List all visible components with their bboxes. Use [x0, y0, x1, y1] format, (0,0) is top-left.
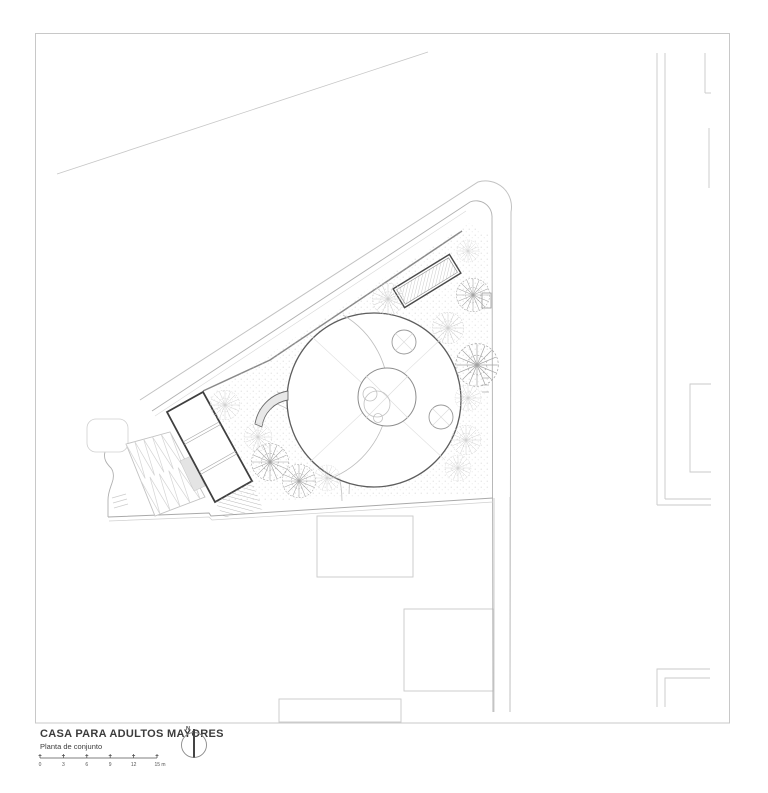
drawing-subtitle: Planta de conjunto	[40, 742, 102, 751]
street-right	[657, 53, 711, 707]
scale-label: 6	[85, 762, 88, 768]
scale-label: 0	[39, 762, 42, 768]
scale-label: 15 m	[154, 762, 165, 768]
scale-label: 9	[109, 762, 112, 768]
north-label: N	[186, 726, 190, 732]
drawing-title: CASA PARA ADULTOS MAYORES	[40, 728, 224, 740]
drawing-sheet: CASA PARA ADULTOS MAYORES Planta de conj…	[0, 0, 768, 793]
title-block: CASA PARA ADULTOS MAYORES Planta de conj…	[39, 726, 224, 768]
main-circular-building	[287, 313, 461, 487]
central-patio	[358, 368, 416, 426]
scale-label: 12	[131, 762, 137, 768]
scale-label: 3	[62, 762, 65, 768]
site-plan-drawing: CASA PARA ADULTOS MAYORES Planta de conj…	[0, 0, 768, 793]
neighbor-buildings	[279, 497, 510, 722]
scale-bar: 0 3 6 9 12 15 m	[39, 754, 166, 768]
road-upper-diagonal	[57, 52, 428, 174]
